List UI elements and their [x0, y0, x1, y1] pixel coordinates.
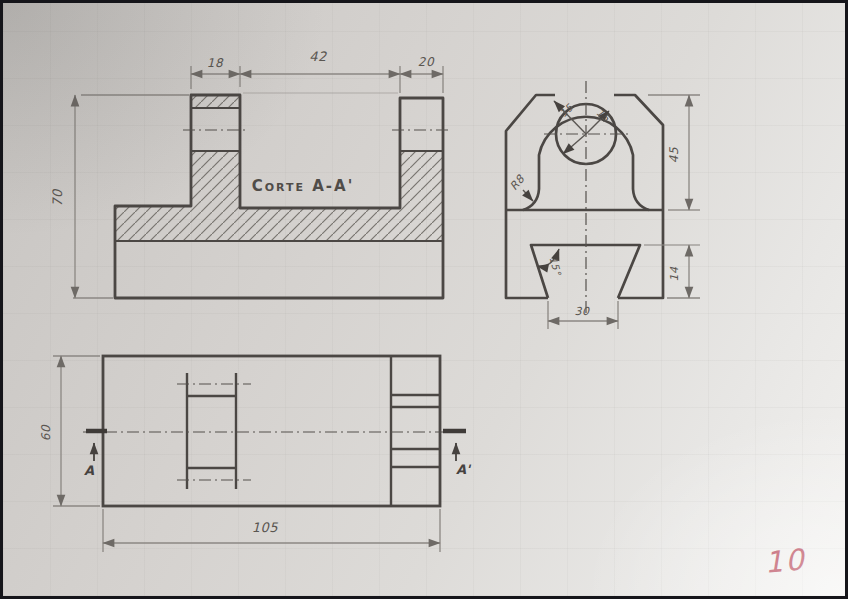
object-line	[506, 95, 555, 298]
plan-dimensions	[53, 356, 440, 552]
side-view: 15 15 R8 15° 45 14 30	[506, 81, 700, 329]
section-a-label: A	[84, 463, 94, 478]
photo-of-technical-drawing: 18 42 20 70 Corte A-A'	[0, 0, 848, 599]
section-line-marks	[86, 431, 466, 461]
radius-arrow	[563, 134, 586, 154]
hatch-area	[192, 96, 239, 108]
hatch-area	[116, 207, 442, 240]
dim-18-label: 18	[207, 56, 224, 70]
fillet-leader	[523, 190, 533, 201]
dim-14-label: 14	[668, 266, 681, 281]
fillet-r8-label: R8	[507, 172, 527, 193]
front-outline	[115, 95, 443, 298]
plan-inner-edges	[187, 356, 440, 506]
object-line	[614, 95, 663, 298]
dim-60-label: 60	[39, 424, 53, 441]
plan-outline	[103, 356, 440, 506]
dim-42-label: 42	[309, 49, 327, 64]
section-a-prime-label: A'	[456, 462, 472, 477]
dim-30-label: 30	[575, 305, 590, 318]
page-number: 10	[763, 542, 807, 579]
plan-view: A A' 60 105	[39, 356, 472, 552]
angle-15-label: 15°	[548, 255, 564, 277]
hatch-area	[401, 151, 442, 207]
front-section-view: 18 42 20 70 Corte A-A'	[50, 49, 451, 298]
section-caption: Corte A-A'	[252, 177, 355, 195]
dim-20-label: 20	[418, 55, 435, 69]
dim-105-label: 105	[252, 520, 279, 535]
section-hatching	[116, 96, 442, 240]
plan-centerlines	[83, 384, 463, 480]
dim-70-label: 70	[50, 188, 65, 207]
hatch-area	[192, 151, 239, 207]
drawing-canvas: 18 42 20 70 Corte A-A'	[3, 3, 848, 599]
side-dimensions	[548, 95, 700, 329]
radius-leaders	[523, 101, 609, 266]
dim-45-label: 45	[667, 146, 681, 163]
